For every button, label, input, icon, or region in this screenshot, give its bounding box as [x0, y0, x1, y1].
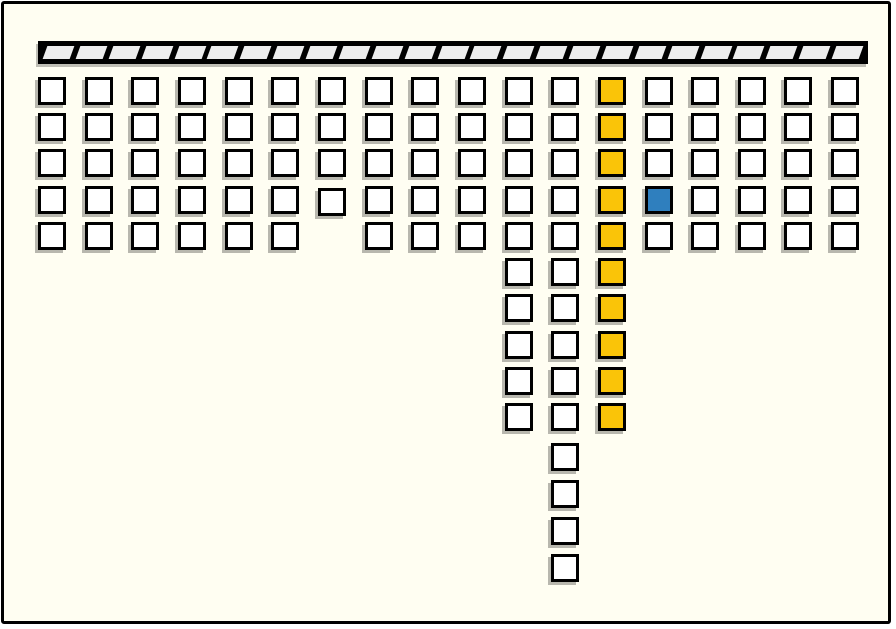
ceiling-bar-segment [437, 46, 469, 59]
grid-cell-r3-c17[interactable] [784, 149, 812, 177]
grid-cell-r5-c13-yellow[interactable] [598, 222, 626, 250]
grid-cell-r2-c17[interactable] [784, 113, 812, 141]
grid-cell-r4-c4[interactable] [178, 186, 206, 214]
grid-cell-r2-c9[interactable] [411, 113, 439, 141]
grid-cell-r4-c18[interactable] [831, 186, 859, 214]
grid-cell-r1-c3[interactable] [131, 77, 159, 105]
grid-cell-r4-c2[interactable] [85, 186, 113, 214]
grid-cell-r4-c14-blue[interactable] [645, 186, 673, 214]
ceiling-bar-segment [404, 46, 436, 59]
grid-cell-r1-c8[interactable] [365, 77, 393, 105]
grid-cell-r5-c2[interactable] [85, 222, 113, 250]
ceiling-bar [38, 41, 868, 64]
grid-cell-r1-c10[interactable] [458, 77, 486, 105]
grid-cell-r4-c6[interactable] [271, 186, 299, 214]
grid-cell-r4-c10[interactable] [458, 186, 486, 214]
grid-cell-r8-c13-yellow[interactable] [598, 331, 626, 359]
ceiling-bar-segment [832, 46, 864, 59]
grid-cell-r1-c12[interactable] [551, 77, 579, 105]
grid-cell-r2-c10[interactable] [458, 113, 486, 141]
grid-cell-r7-c12[interactable] [551, 294, 579, 322]
grid-cell-r8-c11[interactable] [505, 331, 533, 359]
grid-cell-r4-c13-yellow[interactable] [598, 186, 626, 214]
grid-cell-r1-c1[interactable] [38, 77, 66, 105]
ceiling-bar-segment [141, 46, 173, 59]
grid-cell-r5-c10[interactable] [458, 222, 486, 250]
grid-cell-r1-c13-yellow[interactable] [598, 77, 626, 105]
grid-cell-r3-c5[interactable] [225, 149, 253, 177]
grid-cell-r2-c16[interactable] [738, 113, 766, 141]
ceiling-bar-segment [207, 46, 239, 59]
grid-cell-r6-c13-yellow[interactable] [598, 258, 626, 286]
grid-cell-r6-c12[interactable] [551, 258, 579, 286]
grid-cell-r7-c11[interactable] [505, 294, 533, 322]
grid-cell-r1-c6[interactable] [271, 77, 299, 105]
ceiling-bar-segment [602, 46, 634, 59]
grid-cell-r1-c7[interactable] [318, 77, 346, 105]
grid-cell-r3-c1[interactable] [38, 149, 66, 177]
grid-cell-r5-c18[interactable] [831, 222, 859, 250]
grid-cell-r4-c12[interactable] [551, 186, 579, 214]
grid-cell-r3-c9[interactable] [411, 149, 439, 177]
grid-cell-r9-c13-yellow[interactable] [598, 367, 626, 395]
grid-cell-r2-c7[interactable] [318, 113, 346, 141]
grid-cell-r3-c2[interactable] [85, 149, 113, 177]
ceiling-bar-segment [174, 46, 206, 59]
ceiling-bar-segment [273, 46, 305, 59]
grid-cell-r2-c11[interactable] [505, 113, 533, 141]
ceiling-bar-segment [306, 46, 338, 59]
grid-cell-r3-c7[interactable] [318, 149, 346, 177]
grid-cell-r4-c3[interactable] [131, 186, 159, 214]
grid-cell-r14-c12[interactable] [551, 554, 579, 582]
grid-cell-r3-c11[interactable] [505, 149, 533, 177]
canvas-frame [1, 1, 891, 624]
grid-cell-r2-c3[interactable] [131, 113, 159, 141]
grid-cell-r4-c15[interactable] [691, 186, 719, 214]
grid-cell-r3-c16[interactable] [738, 149, 766, 177]
grid-cell-r1-c16[interactable] [738, 77, 766, 105]
ceiling-bar-segment [700, 46, 732, 59]
grid-cell-r2-c1[interactable] [38, 113, 66, 141]
grid-cell-r10-c13-yellow[interactable] [598, 403, 626, 431]
grid-cell-r1-c4[interactable] [178, 77, 206, 105]
grid-cell-r5-c6[interactable] [271, 222, 299, 250]
ceiling-bar-segment [569, 46, 601, 59]
grid-cell-r1-c11[interactable] [505, 77, 533, 105]
grid-cell-r3-c8[interactable] [365, 149, 393, 177]
grid-cell-r5-c1[interactable] [38, 222, 66, 250]
grid-cell-r2-c13-yellow[interactable] [598, 113, 626, 141]
ceiling-bar-segment [503, 46, 535, 59]
grid-cell-r1-c17[interactable] [784, 77, 812, 105]
grid-cell-r13-c12[interactable] [551, 517, 579, 545]
ceiling-bar-segment [371, 46, 403, 59]
grid-cell-r4-c1[interactable] [38, 186, 66, 214]
grid-cell-r1-c18[interactable] [831, 77, 859, 105]
grid-cell-r10-c12[interactable] [551, 403, 579, 431]
grid-cell-r2-c4[interactable] [178, 113, 206, 141]
ceiling-bar-segment [76, 46, 108, 59]
grid-cell-r3-c14[interactable] [645, 149, 673, 177]
grid-cell-r4-c9[interactable] [411, 186, 439, 214]
grid-cell-r1-c14[interactable] [645, 77, 673, 105]
grid-cell-r5-c14[interactable] [645, 222, 673, 250]
grid-cell-r5-c9[interactable] [411, 222, 439, 250]
grid-cell-r1-c2[interactable] [85, 77, 113, 105]
grid-cell-r4-c11[interactable] [505, 186, 533, 214]
ceiling-bar-segment [733, 46, 765, 59]
grid-cell-r5-c4[interactable] [178, 222, 206, 250]
ceiling-bar-segment [536, 46, 568, 59]
grid-cell-r5-c5[interactable] [225, 222, 253, 250]
grid-cell-r3-c12[interactable] [551, 149, 579, 177]
ceiling-bar-segment [339, 46, 371, 59]
grid-cell-r4-c17[interactable] [784, 186, 812, 214]
grid-cell-r2-c18[interactable] [831, 113, 859, 141]
grid-cell-r5-c16[interactable] [738, 222, 766, 250]
simulation-stage [0, 0, 896, 629]
grid-cell-r12-c12[interactable] [551, 480, 579, 508]
ceiling-bar-segment [766, 46, 798, 59]
grid-cell-r4-c8[interactable] [365, 186, 393, 214]
grid-cell-r2-c14[interactable] [645, 113, 673, 141]
grid-cell-r1-c9[interactable] [411, 77, 439, 105]
grid-cell-r5-c3[interactable] [131, 222, 159, 250]
grid-cell-r5-c11[interactable] [505, 222, 533, 250]
grid-cell-r3-c18[interactable] [831, 149, 859, 177]
grid-cell-r4-c5[interactable] [225, 186, 253, 214]
grid-cell-r3-c10[interactable] [458, 149, 486, 177]
ceiling-bar-segment [43, 46, 75, 59]
grid-cell-r2-c15[interactable] [691, 113, 719, 141]
grid-cell-r4-c7[interactable] [318, 188, 346, 216]
ceiling-bar-segment [799, 46, 831, 59]
grid-cell-r3-c13-yellow[interactable] [598, 149, 626, 177]
grid-cell-r11-c12[interactable] [551, 443, 579, 471]
ceiling-bar-segment [240, 46, 272, 59]
grid-cell-r2-c2[interactable] [85, 113, 113, 141]
grid-cell-r7-c13-yellow[interactable] [598, 294, 626, 322]
grid-cell-r4-c16[interactable] [738, 186, 766, 214]
grid-cell-r2-c8[interactable] [365, 113, 393, 141]
grid-cell-r5-c12[interactable] [551, 222, 579, 250]
grid-cell-r2-c5[interactable] [225, 113, 253, 141]
grid-cell-r1-c5[interactable] [225, 77, 253, 105]
grid-cell-r3-c15[interactable] [691, 149, 719, 177]
grid-cell-r8-c12[interactable] [551, 331, 579, 359]
grid-cell-r2-c12[interactable] [551, 113, 579, 141]
ceiling-bar-segment [470, 46, 502, 59]
grid-cell-r3-c6[interactable] [271, 149, 299, 177]
grid-cell-r5-c17[interactable] [784, 222, 812, 250]
grid-cell-r2-c6[interactable] [271, 113, 299, 141]
grid-cell-r9-c12[interactable] [551, 367, 579, 395]
grid-cell-r3-c3[interactable] [131, 149, 159, 177]
grid-cell-r9-c11[interactable] [505, 367, 533, 395]
grid-cell-r6-c11[interactable] [505, 258, 533, 286]
grid-cell-r3-c4[interactable] [178, 149, 206, 177]
grid-cell-r5-c15[interactable] [691, 222, 719, 250]
grid-cell-r5-c8[interactable] [365, 222, 393, 250]
ceiling-bar-segment [108, 46, 140, 59]
grid-cell-r10-c11[interactable] [505, 403, 533, 431]
ceiling-bar-segment [667, 46, 699, 59]
grid-cell-r1-c15[interactable] [691, 77, 719, 105]
ceiling-bar-segment [634, 46, 666, 59]
